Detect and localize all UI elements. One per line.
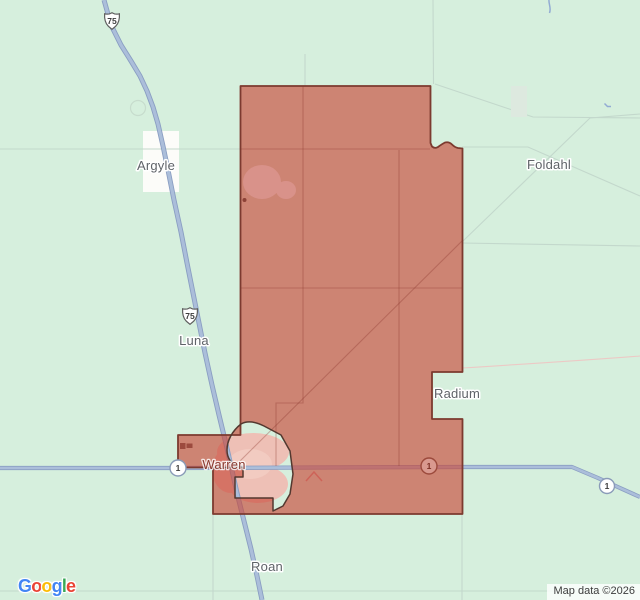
map-attribution: Map data ©2026 [547,584,640,600]
google-logo-letter: o [31,576,41,596]
route-1-shield-number: 1 [605,481,610,491]
route-1-shield-icon: 1 [421,458,437,474]
route-1-shield-icon: 1 [170,460,186,476]
google-logo-letter: g [52,576,62,596]
place-label-radium: Radium [434,386,480,401]
map-canvas[interactable]: 75 75 1 1 1 Argyle Foldahl Luna Radium W… [0,0,640,600]
google-logo-letter: e [66,576,75,596]
google-logo[interactable]: Google [18,576,75,597]
route-1-shield-number: 1 [427,461,432,471]
built-area-rect [511,86,527,117]
google-logo-letter: o [41,576,51,596]
us-75-shield-number: 75 [107,16,117,26]
google-logo-letter: G [18,576,31,596]
map-graphics: 75 75 1 1 1 Argyle Foldahl Luna Radium W… [0,0,640,600]
place-label-warren: Warren [202,457,245,472]
us-75-shield-number: 75 [185,311,195,321]
place-label-foldahl: Foldahl [527,157,571,172]
place-label-roan: Roan [251,559,283,574]
route-1-shield-icon: 1 [600,479,615,494]
place-label-luna: Luna [179,333,209,348]
route-1-shield-number: 1 [176,463,181,473]
place-label-argyle: Argyle [137,158,175,173]
